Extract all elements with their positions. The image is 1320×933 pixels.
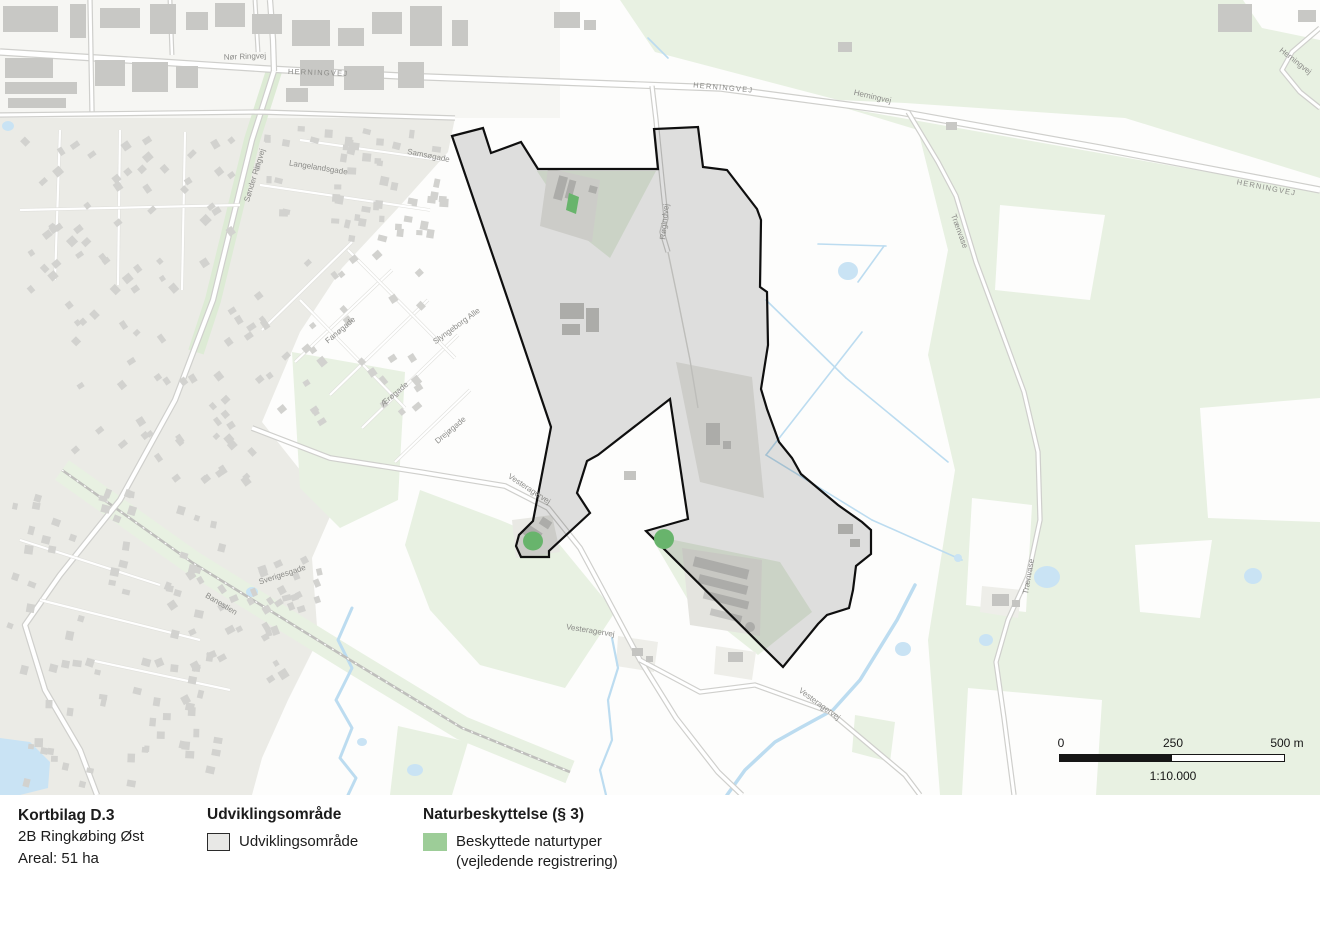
- house: [28, 744, 34, 750]
- building: [838, 42, 852, 52]
- house: [345, 137, 353, 146]
- building: [292, 20, 330, 46]
- building: [8, 98, 66, 108]
- building: [1218, 4, 1252, 32]
- house: [347, 167, 356, 174]
- field-cut-b: [1135, 540, 1212, 618]
- house: [26, 603, 35, 613]
- field-cut-a: [1200, 398, 1320, 522]
- house: [439, 196, 447, 203]
- farm-building: [646, 656, 653, 662]
- building: [150, 4, 176, 34]
- scale-label-start: 0: [1058, 736, 1065, 750]
- building: [5, 58, 53, 78]
- house: [48, 545, 57, 553]
- house: [181, 741, 190, 750]
- road-label: Nør Ringvej: [224, 51, 267, 61]
- legend-development-item: Udviklingsområde: [207, 832, 358, 852]
- house: [298, 126, 305, 132]
- house: [265, 137, 271, 143]
- house: [420, 220, 429, 230]
- building: [286, 88, 308, 102]
- house: [149, 718, 156, 727]
- legend-nature: Naturbeskyttelse (§ 3) Beskyttede naturt…: [423, 805, 618, 872]
- building: [95, 60, 125, 86]
- house: [324, 129, 332, 138]
- building: [100, 8, 140, 28]
- legend-nature-heading: Naturbeskyttelse (§ 3): [423, 805, 618, 825]
- house: [32, 502, 41, 510]
- development-swatch: [207, 833, 230, 851]
- house: [334, 195, 344, 205]
- legend-band: Kortbilag D.3 2B Ringkøbing Øst Areal: 5…: [0, 795, 1320, 933]
- scale-bar-labels: 0 250 500 m: [1059, 736, 1287, 751]
- house: [374, 158, 381, 164]
- scale-bar-rule: [1059, 754, 1285, 762]
- farm-building: [1012, 600, 1020, 607]
- map-subtitle: 2B Ringkøbing Øst: [18, 826, 144, 848]
- house: [416, 230, 422, 235]
- pond: [838, 262, 858, 280]
- nature-swatch: [423, 833, 447, 851]
- house: [24, 545, 34, 555]
- nature-swatch-label: Beskyttede naturtyper (vejledende regist…: [456, 832, 618, 872]
- legend-development: Udviklingsområde Udviklingsområde: [207, 805, 358, 852]
- nature-patch: [654, 529, 674, 549]
- building: [344, 66, 384, 90]
- house: [153, 697, 161, 706]
- house: [166, 585, 174, 593]
- house: [40, 747, 48, 755]
- farm-building: [728, 652, 743, 662]
- building: [252, 14, 282, 34]
- building: [946, 122, 957, 130]
- house: [144, 745, 149, 752]
- development-swatch-label: Udviklingsområde: [239, 832, 358, 852]
- building: [186, 12, 208, 30]
- house: [375, 200, 383, 209]
- building: [1298, 10, 1316, 22]
- building: [452, 20, 468, 46]
- pond: [954, 554, 962, 562]
- building: [3, 6, 58, 32]
- house: [157, 731, 165, 739]
- house: [110, 567, 120, 577]
- house: [331, 218, 339, 224]
- building: [132, 62, 168, 92]
- building: [554, 12, 580, 28]
- house: [45, 700, 52, 709]
- house: [72, 660, 82, 668]
- house: [193, 729, 199, 738]
- house: [163, 713, 171, 720]
- house: [127, 753, 135, 762]
- house: [282, 139, 290, 147]
- scale-ratio: 1:10.000: [1059, 769, 1287, 783]
- pond: [1034, 566, 1060, 588]
- base-map-svg: Nør RingvejHERNINGVEJHERNINGVEJHERNINGVE…: [0, 0, 1320, 795]
- field-cut-e: [995, 205, 1105, 300]
- farm-building: [632, 648, 643, 656]
- building: [338, 28, 364, 46]
- house: [279, 209, 288, 216]
- farm-building: [992, 594, 1009, 606]
- house: [379, 176, 389, 187]
- house: [192, 664, 201, 672]
- pond: [407, 764, 423, 776]
- house: [334, 184, 341, 189]
- scale-bar: 0 250 500 m 1:10.000: [1059, 736, 1287, 783]
- building: [410, 6, 442, 46]
- house: [409, 130, 415, 139]
- house: [266, 176, 271, 183]
- house: [343, 145, 349, 151]
- map-title: Kortbilag D.3: [18, 805, 144, 826]
- house: [61, 660, 70, 669]
- house: [66, 708, 73, 717]
- house: [376, 138, 384, 146]
- house: [340, 153, 348, 162]
- pond: [1244, 568, 1262, 584]
- pond: [357, 738, 367, 746]
- map-area-value: Areal: 51 ha: [18, 848, 144, 870]
- house: [348, 235, 355, 242]
- building: [398, 62, 424, 88]
- house: [362, 153, 371, 162]
- house: [379, 216, 384, 223]
- house: [170, 664, 178, 672]
- map-area[interactable]: Nør RingvejHERNINGVEJHERNINGVEJHERNINGVE…: [0, 0, 1320, 795]
- nature-label-line2: (vejledende registrering): [456, 853, 618, 870]
- building: [584, 20, 596, 30]
- legend-development-heading: Udviklingsområde: [207, 805, 358, 825]
- scale-label-end: 500 m: [1270, 736, 1303, 750]
- house: [426, 229, 435, 239]
- building: [70, 4, 86, 38]
- house: [122, 541, 130, 551]
- legend-nature-item: Beskyttede naturtyper (vejledende regist…: [423, 832, 618, 872]
- pond: [979, 634, 993, 646]
- house: [354, 214, 360, 221]
- house: [427, 196, 436, 204]
- nature-patch: [523, 532, 543, 551]
- pond: [895, 642, 911, 656]
- scale-label-mid: 250: [1163, 736, 1183, 750]
- building: [5, 82, 77, 94]
- farm-building: [624, 471, 636, 480]
- road-industrial-v1: [90, 0, 92, 112]
- house: [185, 751, 194, 759]
- house: [34, 738, 43, 747]
- house: [51, 756, 58, 762]
- house: [395, 224, 402, 231]
- title-block: Kortbilag D.3 2B Ringkøbing Øst Areal: 5…: [18, 805, 144, 869]
- building: [176, 66, 198, 88]
- nature-label-line1: Beskyttede naturtyper: [456, 833, 602, 850]
- building: [215, 3, 245, 27]
- kortbilag-frame: Nør RingvejHERNINGVEJHERNINGVEJHERNINGVE…: [0, 0, 1320, 933]
- farm-lot-731: [714, 646, 756, 680]
- pond: [2, 121, 14, 131]
- building: [372, 12, 402, 34]
